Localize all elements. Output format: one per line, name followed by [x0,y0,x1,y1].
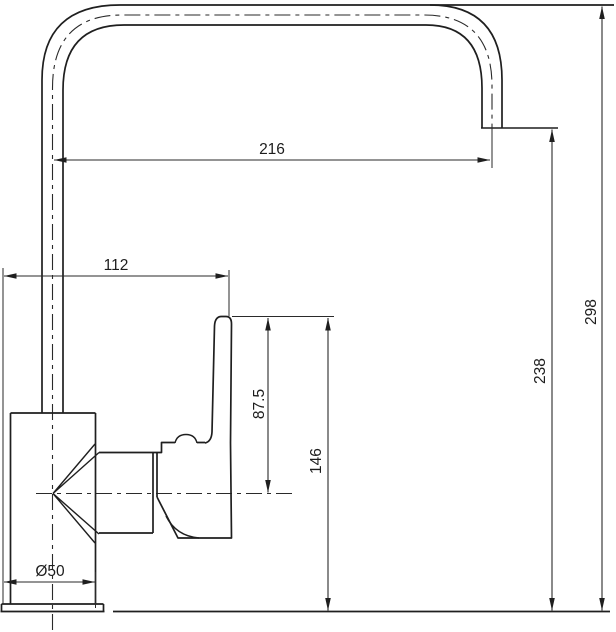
handle-shelf [153,443,205,453]
dim-handle-to-centerline-label: 87.5 [251,389,268,419]
dim-handle-top-height-label: 146 [308,448,325,474]
cartridge-cap-dome [175,435,197,444]
cartridge-neck [99,453,157,534]
dim-outlet-height-label: 238 [532,358,549,384]
pipe-outer-right [430,5,502,128]
pipe-inner [63,25,482,413]
handle-lever [157,317,232,539]
dimension-238: 238 [532,130,552,611]
handle-base-fillet [166,516,199,538]
dimension-298: 298 [583,7,602,611]
cartridge-and-handle [99,317,232,539]
dimension-216: 216 [54,141,490,160]
dim-base-diameter-label: Ø50 [35,563,65,580]
drawing-canvas: 216 112 87.5 146 238 298 Ø50 [0,0,616,632]
pipe-centerline [53,15,493,630]
dimension-146: 146 [308,318,328,611]
extension-lines [3,132,492,608]
dim-spout-reach-label: 216 [259,141,285,158]
dim-overall-height-label: 298 [583,299,600,325]
dim-base-to-handle-label: 112 [104,257,129,274]
dimension-diameter-50: Ø50 [4,563,95,582]
centerlines [36,15,492,630]
faucet-technical-drawing: 216 112 87.5 146 238 298 Ø50 [0,0,616,632]
dimension-87-5: 87.5 [251,318,268,493]
dimension-112: 112 [4,257,228,276]
